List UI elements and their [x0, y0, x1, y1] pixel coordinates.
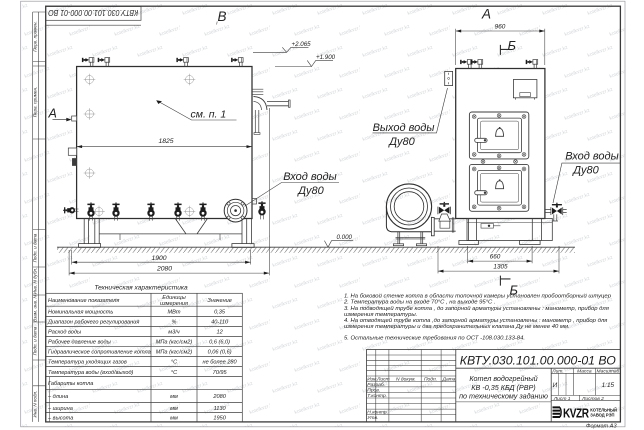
svg-text:мм: мм — [170, 406, 178, 412]
svg-text:Утв.: Утв. — [367, 415, 378, 421]
svg-text:Дата: Дата — [442, 376, 456, 382]
svg-text:Ду80: Ду80 — [296, 185, 324, 197]
svg-text:1900: 1900 — [151, 255, 166, 262]
svg-text:Н.контр.: Н.контр. — [367, 410, 388, 416]
svg-text:Единицы: Единицы — [162, 295, 185, 301]
svg-text:1305: 1305 — [493, 264, 508, 271]
svg-text:70/95: 70/95 — [213, 370, 228, 376]
svg-text:1. На боковой стенке котла в: 1. На боковой стенке котла в области топ… — [344, 293, 612, 300]
svg-text:измерения: измерения — [160, 301, 188, 307]
svg-text:КВТУ.030.101.00.000-01 ВО: КВТУ.030.101.00.000-01 ВО — [48, 8, 138, 17]
svg-text:Подп.: Подп. — [424, 376, 437, 382]
svg-text:1950: 1950 — [213, 416, 226, 422]
svg-text:960: 960 — [495, 23, 506, 30]
svg-text:Диапазон рабочего регулировани: Диапазон рабочего регулирования — [47, 320, 139, 326]
svg-text:В: В — [218, 9, 227, 24]
svg-text:А: А — [48, 107, 57, 121]
svg-text:Инв. N подл.: Инв. N подл. — [32, 391, 37, 418]
svg-text:см. п. 1: см. п. 1 — [191, 109, 227, 121]
svg-text:1825: 1825 — [158, 138, 173, 145]
svg-text:Ду80: Ду80 — [387, 136, 415, 148]
svg-text:– ширина: – ширина — [47, 406, 73, 412]
svg-text:Выход воды: Выход воды — [373, 122, 435, 134]
svg-text:Расход воды: Расход воды — [48, 330, 81, 336]
svg-text:Номинальная мощность: Номинальная мощность — [48, 310, 113, 316]
svg-text:Пров.: Пров. — [367, 387, 380, 393]
svg-text:Лист: Лист — [376, 376, 390, 382]
svg-text:Вход воды: Вход воды — [283, 171, 336, 183]
svg-text:0,35: 0,35 — [214, 310, 226, 316]
svg-text:Инв. N дубл.: Инв. N дубл. — [32, 268, 37, 295]
svg-text:Наименование показателя: Наименование показателя — [48, 298, 119, 304]
svg-text:– длина: – длина — [47, 394, 68, 400]
svg-text:Подп. и дата: Подп. и дата — [32, 233, 37, 262]
svg-text:3. На подводящей трубе котла: 3. На подводящей трубе котла , до запорн… — [344, 305, 610, 312]
svg-text:Б: Б — [508, 38, 517, 53]
svg-text:4. На отводящей трубе котла ,: 4. На отводящей трубе котла ,до запорной… — [344, 317, 608, 324]
svg-text:по техническому заданию: по техническому заданию — [459, 392, 548, 401]
svg-text:Подп. и дата: Подп. и дата — [32, 326, 37, 355]
svg-text:%: % — [172, 320, 177, 326]
svg-text:мм: мм — [170, 394, 178, 400]
svg-text:5. Остальные технические треб: 5. Остальные технические требования по О… — [344, 335, 525, 341]
svg-text:2. Температура воды на входе: 2. Температура воды на входе 70°С , на в… — [343, 300, 496, 306]
svg-text:Перв. примен.: Перв. примен. — [32, 87, 37, 118]
svg-text:Температура уходящих газов: Температура уходящих газов — [48, 360, 127, 366]
svg-text:2080: 2080 — [156, 266, 172, 273]
svg-text:Вход воды: Вход воды — [565, 151, 618, 163]
svg-text:Техническая характеристика: Техническая характеристика — [94, 284, 188, 291]
svg-text:Лист 1: Лист 1 — [553, 396, 571, 402]
svg-text:МПа (кгс/см2): МПа (кгс/см2) — [156, 340, 193, 346]
svg-text:Взам. инв. N: Взам. инв. N — [32, 294, 37, 321]
svg-text:МВт: МВт — [167, 310, 180, 316]
svg-text:Перв. примен.: Перв. примен. — [32, 21, 37, 52]
svg-text:Листов 2: Листов 2 — [581, 396, 604, 402]
svg-text:1:15: 1:15 — [602, 382, 615, 389]
svg-text:Масштаб: Масштаб — [596, 368, 619, 374]
svg-text:Значение: Значение — [207, 298, 232, 304]
svg-text:Разраб.: Разраб. — [367, 382, 385, 388]
svg-text:ЗАВОД РЭП: ЗАВОД РЭП — [590, 413, 614, 418]
svg-text:мм: мм — [170, 416, 178, 422]
svg-text:м3/ч: м3/ч — [168, 330, 179, 336]
svg-text:660: 660 — [490, 254, 501, 261]
svg-text:Масса: Масса — [577, 368, 592, 374]
svg-text:0,6 (6,0): 0,6 (6,0) — [209, 340, 230, 346]
svg-text:°С: °С — [171, 370, 178, 376]
svg-text:N докум.: N докум. — [396, 376, 416, 382]
svg-text:Габариты котла: Габариты котла — [48, 381, 93, 387]
svg-text:Температура воды (вход/выход): Температура воды (вход/выход) — [48, 370, 134, 376]
svg-text:2080: 2080 — [212, 394, 226, 400]
svg-text:Котел водогрейный: Котел водогрейный — [469, 374, 537, 383]
svg-text:Формат А3: Формат А3 — [586, 423, 617, 429]
svg-text:+1.900: +1.900 — [316, 54, 336, 61]
svg-text:МПа (кгс/см2): МПа (кгс/см2) — [156, 350, 193, 356]
svg-text:– высота: – высота — [47, 416, 73, 422]
svg-text:измерения температуры и два пр: измерения температуры и два предохраните… — [344, 324, 570, 330]
svg-text:КВТУ.030.101.00.000-01 ВО: КВТУ.030.101.00.000-01 ВО — [460, 353, 617, 367]
svg-text:Рабочее давление воды: Рабочее давление воды — [48, 340, 111, 346]
svg-text:Лит.: Лит. — [551, 368, 563, 374]
svg-text:0,06 (0,6): 0,06 (0,6) — [208, 350, 232, 356]
svg-text:Т.контр.: Т.контр. — [367, 393, 387, 399]
svg-text:KVZR: KVZR — [563, 407, 589, 421]
svg-text:1130: 1130 — [214, 406, 227, 412]
svg-text:А: А — [481, 7, 491, 22]
svg-text:40-110: 40-110 — [211, 320, 229, 326]
svg-text:+2.065: +2.065 — [292, 41, 312, 48]
svg-text:не более 280: не более 280 — [203, 360, 238, 366]
svg-text:12: 12 — [216, 330, 223, 336]
svg-text:измерения температуры.: измерения температуры. — [344, 312, 417, 318]
svg-text:Гидравлическое сопротивление к: Гидравлическое сопротивление котла — [48, 350, 151, 356]
svg-text:И: И — [553, 382, 558, 389]
svg-text:Ду80: Ду80 — [571, 164, 599, 176]
svg-text:0.000: 0.000 — [337, 234, 353, 241]
svg-text:°С: °С — [171, 360, 178, 366]
